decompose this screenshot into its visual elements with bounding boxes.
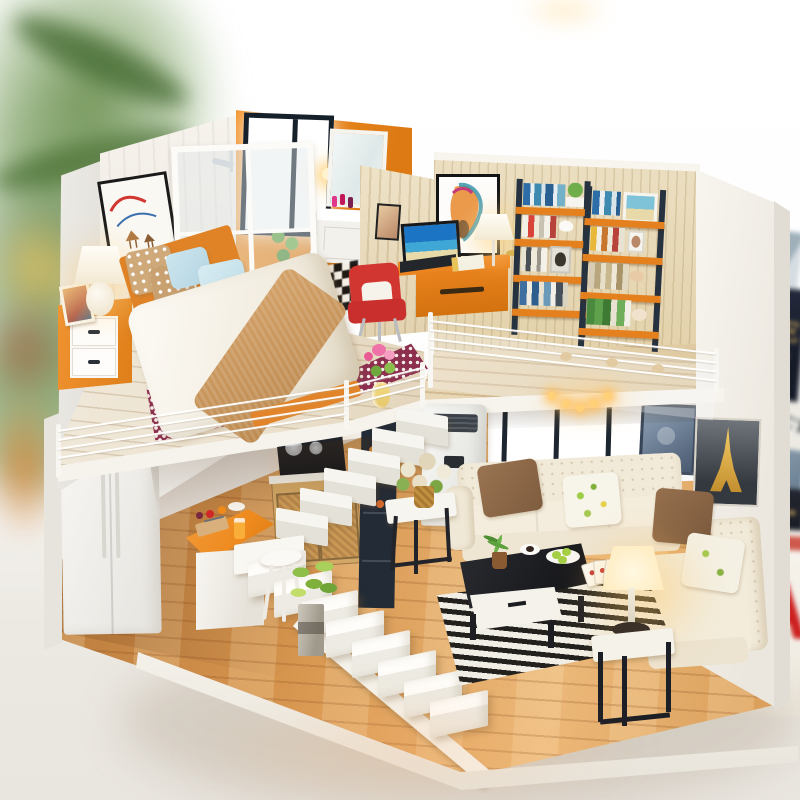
string-lights-glow xyxy=(532,374,642,426)
art-detail xyxy=(657,426,676,445)
light-bulb xyxy=(576,404,584,412)
shelf-line xyxy=(362,560,392,563)
pink-flower xyxy=(364,352,373,361)
floral-pillow xyxy=(562,472,622,529)
beach-picture-frame xyxy=(622,192,658,224)
drawer xyxy=(72,348,116,376)
table-leg xyxy=(666,642,671,712)
potted-plant-leaves xyxy=(288,552,340,610)
plant-pot xyxy=(492,552,507,569)
bedside-lamp-base xyxy=(86,282,114,316)
rose-pot xyxy=(414,486,434,508)
book-row xyxy=(521,247,548,272)
book-row xyxy=(519,281,568,307)
red-chair-seat xyxy=(347,298,406,324)
dollhouse-photo: ME T NOCT CA xyxy=(0,0,800,800)
book-row xyxy=(588,262,629,290)
bookshelf-unit-2 xyxy=(578,186,666,352)
fridge-handle xyxy=(101,462,107,558)
seashell xyxy=(629,270,644,282)
seashell xyxy=(606,358,618,367)
drawer-handle xyxy=(88,360,100,364)
brown-pillow xyxy=(476,458,543,519)
fridge-handle xyxy=(115,462,121,558)
can-label xyxy=(298,622,324,634)
cosmetic-bottle xyxy=(340,194,345,205)
bedside-lamp-shade xyxy=(74,246,126,284)
table-leg xyxy=(470,614,476,640)
desk-lamp-stem xyxy=(492,240,495,266)
bird-figurine xyxy=(559,220,573,231)
seashell xyxy=(560,352,572,361)
seashell xyxy=(631,309,647,322)
eiffel-tower-glow xyxy=(701,423,753,497)
cosmetic-bottle xyxy=(332,196,337,207)
seashell xyxy=(652,364,664,373)
shelf-board xyxy=(512,309,586,319)
light-bulb xyxy=(590,400,598,408)
desk-drawer-front xyxy=(416,267,508,317)
book-row xyxy=(590,226,625,252)
couple-photo-frame xyxy=(627,230,645,253)
book-row xyxy=(523,183,566,206)
light-bulb xyxy=(548,392,556,400)
stool-leg xyxy=(282,566,286,622)
right-outer-wall-edge xyxy=(774,196,790,712)
portrait-photo xyxy=(549,246,571,274)
plant-metal-can xyxy=(298,604,324,656)
table-leg xyxy=(548,622,554,648)
shelf-plant xyxy=(566,182,585,207)
drawer-handle-slot xyxy=(440,286,484,294)
green-fruit xyxy=(558,556,567,564)
book-row xyxy=(592,190,621,215)
cosmetic-bottle xyxy=(348,197,353,208)
table-leg xyxy=(414,520,418,574)
book-row xyxy=(586,298,631,326)
light-bulb xyxy=(562,400,570,408)
coffee-cup xyxy=(520,544,540,555)
green-fruit xyxy=(562,548,571,556)
book-row xyxy=(522,215,557,238)
small-framed-photo xyxy=(375,203,401,241)
light-bulb xyxy=(604,392,612,400)
railing-post xyxy=(56,424,61,478)
pink-flower xyxy=(384,350,395,360)
table-warm-reflection xyxy=(180,690,650,800)
